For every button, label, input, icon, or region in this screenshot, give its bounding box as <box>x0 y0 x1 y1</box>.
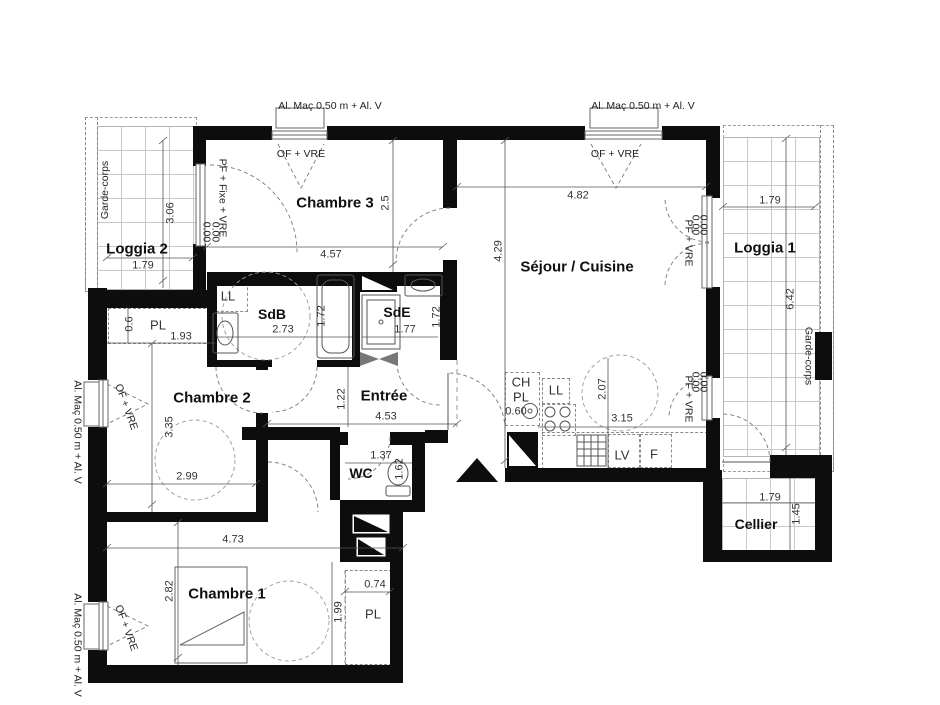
dim-chambre3-width: 4.57 <box>320 250 341 261</box>
wall-segment <box>340 512 403 562</box>
wall-segment <box>505 468 720 482</box>
wall-segment <box>88 665 403 683</box>
dim-loggia1-depth: 6.42 <box>786 288 797 309</box>
dim-sejour-depth: 4.29 <box>494 240 505 261</box>
closet-label-chambre1: PL <box>365 608 381 621</box>
room-name-chambre3: Chambre 3 <box>296 196 374 211</box>
room-name-chambre1: Chambre 1 <box>188 587 266 602</box>
dim-closet-chambre1-width: 0.74 <box>364 580 385 591</box>
wall-segment <box>88 512 268 522</box>
dim-loggia2-width: 1.79 <box>132 261 153 272</box>
closet-label-entree-line2: PL <box>513 391 529 404</box>
dim-entree-width: 4.53 <box>375 412 396 423</box>
wall-segment <box>443 260 457 272</box>
wall-segment <box>207 286 217 360</box>
room-name-loggia2: Loggia 2 <box>106 242 168 257</box>
wall-segment <box>256 360 268 370</box>
level-label: 0.00 <box>210 222 221 242</box>
room-name-wc: WC <box>349 466 372 480</box>
wall-segment <box>242 427 340 440</box>
wall-segment <box>412 445 425 500</box>
room-name-sdb: SdB <box>258 307 286 321</box>
dim-sdb-width: 2.73 <box>272 325 293 336</box>
wall-segment <box>440 272 457 360</box>
room-name-chambre2: Chambre 2 <box>173 391 251 406</box>
dishwasher-label: LV <box>615 449 630 462</box>
window-type-label: OF + VRE <box>113 604 139 653</box>
closet-label-chambre2: PL <box>150 319 166 332</box>
closet-label-entree-line1: CH <box>512 376 531 389</box>
window-note: Al. Maç 0.50 m + Al. V <box>591 101 695 112</box>
window-type-label: OF + VRE <box>113 383 139 432</box>
window-note: Al. Maç 0.50 m + Al. V <box>72 593 83 697</box>
dim-chambre3-depth: 2.5 <box>381 195 392 210</box>
dim-closet-entree-width: 0.60 <box>505 407 526 418</box>
dim-wc-width: 1.37 <box>370 451 391 462</box>
wall-segment <box>330 440 340 500</box>
entrance-arrow <box>456 458 498 482</box>
dim-kitchen-depth: 2.07 <box>598 378 609 399</box>
fridge-label: F <box>650 448 658 461</box>
wall-segment <box>327 126 585 140</box>
wall-segment <box>207 272 457 286</box>
level-label: 0.00 <box>698 372 709 392</box>
loggia1-guardrail <box>820 125 834 470</box>
wall-segment <box>703 550 832 562</box>
loggia1-floor <box>723 137 820 457</box>
wall-segment <box>815 332 832 380</box>
wall-segment <box>703 470 722 562</box>
wall-segment <box>193 140 206 166</box>
loggia2-guardrail <box>85 117 98 290</box>
window-note: Al. Maç 0.50 m + Al. V <box>72 380 83 484</box>
room-name-entree: Entrée <box>361 389 408 404</box>
wall-segment <box>390 562 403 665</box>
wall-segment <box>706 287 720 378</box>
dim-cellier-width: 1.79 <box>759 493 780 504</box>
dim-loggia1-width: 1.79 <box>759 196 780 207</box>
dim-sde-depth: 1.72 <box>432 306 443 327</box>
wall-segment <box>340 500 425 512</box>
window-type-label: OF + VRE <box>591 149 639 160</box>
dim-sejour-width: 4.82 <box>567 191 588 202</box>
wall-segment <box>425 430 448 443</box>
wall-segment <box>352 272 360 360</box>
dim-entree-depth: 1.22 <box>337 388 348 409</box>
dim-closet-chambre2-width: 1.93 <box>170 332 191 343</box>
wall-segment <box>95 290 215 308</box>
wall-segment <box>770 455 815 478</box>
wall-segment <box>390 432 425 445</box>
dim-chambre1-depth: 2.82 <box>165 580 176 601</box>
washer-label-sdb: LL <box>221 290 235 303</box>
dim-sdb-depth: 1.72 <box>317 305 328 326</box>
room-name-cellier: Cellier <box>735 517 778 531</box>
wall-segment <box>193 126 272 140</box>
wall-segment <box>193 244 206 290</box>
guardrail-label: Garde-corps <box>803 327 814 385</box>
washer-label-kitchen: LL <box>549 384 563 397</box>
wall-segment <box>256 440 268 512</box>
window-type-label: OF + VRE <box>277 149 325 160</box>
wall-segment <box>662 126 720 140</box>
dim-wc-depth: 1.62 <box>395 458 406 479</box>
window-note: Al. Maç 0.50 m + Al. V <box>278 101 382 112</box>
bed <box>175 567 247 663</box>
dim-loggia2-depth: 3.06 <box>166 202 177 223</box>
dim-chambre2-depth: 3.35 <box>165 416 176 437</box>
room-name-sejour: Séjour / Cuisine <box>520 260 633 275</box>
dim-sde-width: 1.77 <box>394 325 415 336</box>
room-name-loggia1: Loggia 1 <box>734 241 796 256</box>
dim-chambre1-depth-right: 1.99 <box>334 601 345 622</box>
dim-chambre2-width: 2.99 <box>176 472 197 483</box>
floor-plan: Al. Maç 0.50 m + Al. V Al. Maç 0.50 m + … <box>0 0 940 705</box>
wall-segment <box>317 360 360 367</box>
dim-closet-chambre2-depth: 0.6 <box>125 316 136 331</box>
dim-cellier-depth: 1.45 <box>792 503 803 524</box>
wall-segment <box>443 140 457 208</box>
wall-segment <box>706 140 720 198</box>
wall-segment <box>815 455 832 562</box>
wall-segment <box>340 432 348 445</box>
dim-kitchen-width: 3.15 <box>611 414 632 425</box>
room-name-sde: SdE <box>383 305 410 319</box>
cellier-floor <box>722 478 817 552</box>
level-label: 0.00 <box>698 215 709 235</box>
dim-chambre1-width: 4.73 <box>222 535 243 546</box>
guardrail-label: Garde-corps <box>100 161 111 219</box>
